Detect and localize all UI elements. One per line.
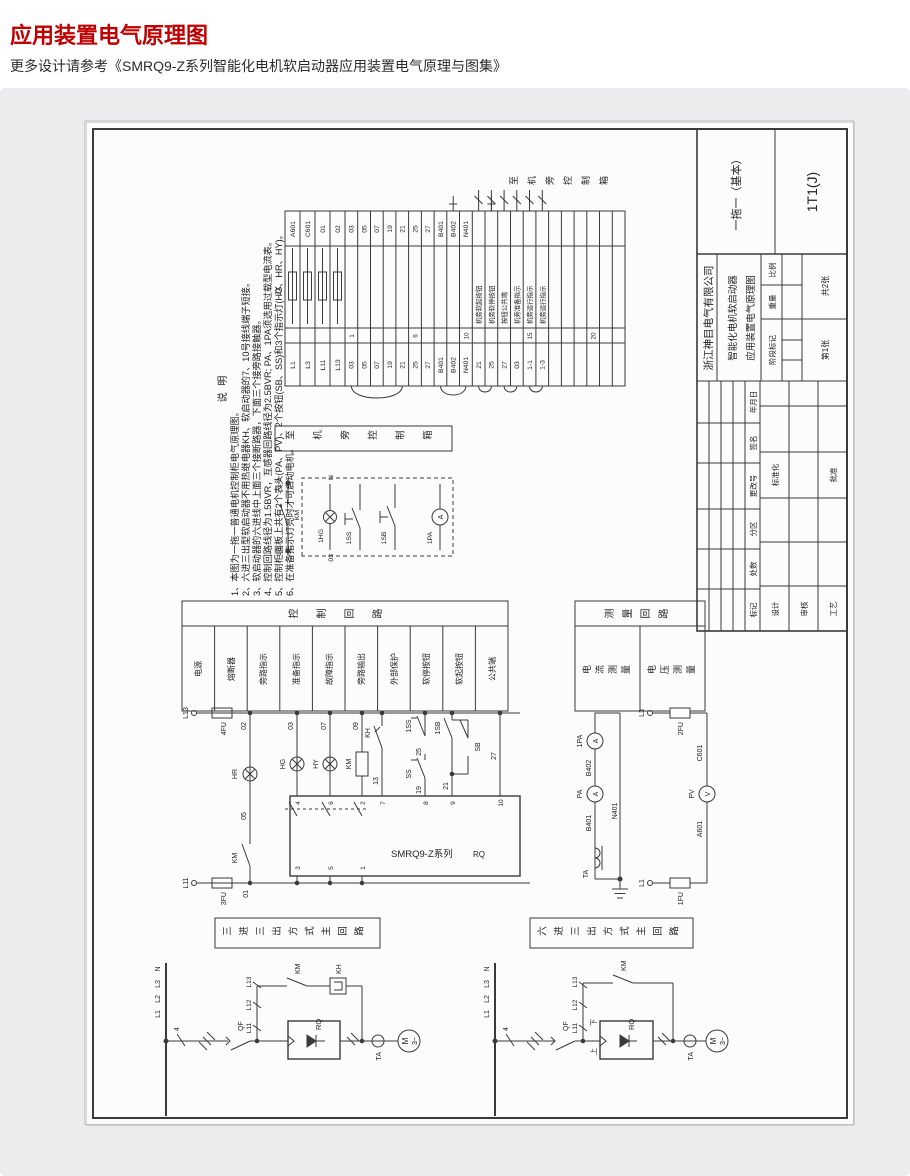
rq-terminal: 10 bbox=[498, 799, 505, 807]
strip-outer: 07 bbox=[374, 361, 381, 369]
contact-label: KH bbox=[365, 728, 372, 738]
contact-label: KM bbox=[232, 853, 239, 864]
main-circuit-a bbox=[164, 918, 420, 1116]
rq-terminal: 9 bbox=[450, 801, 457, 805]
bus-label: L1 bbox=[155, 1010, 162, 1018]
motor-letter: M bbox=[401, 1037, 410, 1044]
wire-label: B401 bbox=[586, 815, 593, 831]
strip-inner: 07 bbox=[374, 225, 381, 233]
measure-row-current: 电流测量 bbox=[582, 663, 634, 676]
tb-scale: 比例 bbox=[767, 263, 777, 278]
rq-terminal: 1 bbox=[360, 866, 367, 870]
wire-label: 07 bbox=[321, 722, 328, 730]
bus-label: L2 bbox=[155, 995, 162, 1003]
strip-outer: 25 bbox=[412, 361, 419, 369]
contact-label: 1SB bbox=[435, 721, 442, 735]
tb-count: 处数 bbox=[748, 561, 758, 576]
strip-inner: N401 bbox=[463, 221, 470, 237]
tb-sheet-no: 第1张 bbox=[820, 340, 830, 360]
caption-main-a: 三进三出方式主回路 bbox=[222, 926, 371, 940]
strip-jumpers bbox=[351, 386, 542, 398]
coil-label: KM bbox=[346, 759, 353, 770]
wire-label: 01 bbox=[243, 890, 250, 898]
contact-label: SB bbox=[475, 742, 482, 752]
strip-num: 1 bbox=[349, 334, 356, 338]
remote-t11: 1-1 bbox=[276, 546, 283, 556]
meter-letter: V bbox=[705, 791, 712, 796]
rotated-drawing: 标记 处数 分区 更改号 签名 年月日 设计 标准化 审核 工艺 批准 浙江神目… bbox=[85, 121, 855, 1126]
tb-code: 1T1(J) bbox=[804, 172, 820, 212]
strip-jx: JX bbox=[274, 286, 283, 296]
strip-func: 机旁运行指示 bbox=[525, 285, 534, 324]
bus-label: L3 bbox=[155, 980, 162, 988]
phase-label: L11 bbox=[246, 1022, 253, 1033]
ctrl-row: 故障指示 bbox=[324, 653, 334, 685]
wire-label: 19 bbox=[416, 786, 423, 794]
strip-outer: 21 bbox=[400, 361, 407, 369]
strip-to-box-label: 至机旁控制箱 bbox=[509, 174, 617, 187]
strip-outer: 03 bbox=[349, 361, 356, 369]
breaker-label: QF bbox=[563, 1021, 570, 1031]
tb-company: 浙江神目电气有限公司 bbox=[702, 266, 715, 371]
strip-num: 15 bbox=[527, 332, 534, 340]
ctrl-row: 软停按钮 bbox=[421, 653, 431, 685]
note-line: 5、控制柜面板上共有2个表头(PA、PV)、2个按钮(SB、SS)和3个指示灯(… bbox=[273, 230, 284, 596]
motor-phase: 3~ bbox=[412, 1037, 419, 1045]
tb-change: 更改号 bbox=[748, 475, 758, 498]
rq-terminal: 4 bbox=[295, 801, 302, 805]
strip-outer: 03 bbox=[514, 361, 521, 369]
strip-func: 按钮公共端 bbox=[500, 291, 509, 324]
strip-stubs bbox=[475, 190, 547, 211]
contact-label: SS bbox=[406, 769, 413, 779]
lamp-label: HR bbox=[232, 769, 239, 779]
strip-inner: 27 bbox=[425, 225, 432, 233]
strip-outer: 1-1 bbox=[527, 360, 534, 370]
title-block bbox=[697, 129, 847, 631]
motor-phase: 3~ bbox=[720, 1037, 727, 1045]
strip-outer: 1-3 bbox=[540, 360, 547, 370]
rq-box-rq-label: RQ bbox=[473, 850, 485, 859]
remote-hg-label: 1HG bbox=[318, 529, 325, 543]
strip-outer: B402 bbox=[451, 357, 458, 373]
note-line: 1、本图为一拖一普通电机控制柜电气原理图。 bbox=[229, 407, 240, 596]
rq-terminal: 3 bbox=[295, 866, 302, 870]
bus-label: N bbox=[484, 966, 491, 971]
strip-inner: 02 bbox=[335, 225, 342, 233]
strip-inner: C601 bbox=[305, 221, 312, 237]
strip-inner: A601 bbox=[290, 221, 297, 237]
wire-label: 13 bbox=[373, 777, 380, 785]
wire-label: N401 bbox=[612, 803, 619, 820]
strip-func: 机旁软停按钮 bbox=[487, 285, 496, 324]
meter-letter: A bbox=[593, 738, 600, 743]
tb-sign: 签名 bbox=[748, 436, 758, 451]
wire-label: B402 bbox=[586, 760, 593, 776]
ctrl-row: 公共端 bbox=[487, 657, 497, 681]
strip-inner: 21 bbox=[400, 225, 407, 233]
ctrl-row: 软起按钮 bbox=[454, 653, 464, 685]
meter-label: PV bbox=[689, 789, 696, 799]
strip-inner: 25 bbox=[412, 225, 419, 233]
wire-label: 4 bbox=[503, 1027, 510, 1031]
page-title: 应用装置电气原理图 bbox=[10, 18, 208, 50]
wire-label: 4 bbox=[174, 1027, 181, 1031]
tb-drawing-title: 应用装置电气原理图 bbox=[745, 275, 757, 361]
notes-heading: 说 明 bbox=[216, 374, 229, 403]
control-circuit bbox=[192, 708, 531, 888]
schematic-svg: 标记 处数 分区 更改号 签名 年月日 设计 标准化 审核 工艺 批准 浙江神目… bbox=[85, 121, 855, 1126]
breaker-label: QF bbox=[238, 1021, 245, 1031]
strip-outer: 27 bbox=[501, 361, 508, 369]
wire-label: 上 bbox=[589, 1048, 598, 1055]
strip-inner: 19 bbox=[387, 225, 394, 233]
frame bbox=[86, 122, 854, 1125]
fuse-label: 3FU bbox=[221, 892, 228, 905]
tb-product: 智能化电机软启动器 bbox=[727, 275, 739, 361]
note-line: 3、软启动器的六进线中上面三个接断路器，下面三个接旁路接触器。 bbox=[251, 315, 262, 596]
strip-inner: 05 bbox=[361, 225, 368, 233]
control-table-header: 控制回路 bbox=[288, 608, 400, 623]
wire-label: 02 bbox=[241, 722, 248, 730]
diagram-panel: 标记 处数 分区 更改号 签名 年月日 设计 标准化 审核 工艺 批准 浙江神目… bbox=[0, 88, 910, 1176]
motor-letter: M bbox=[709, 1037, 718, 1044]
strip-outer: B401 bbox=[438, 357, 445, 373]
remote-ammeter-letter: A bbox=[438, 514, 445, 519]
tb-design: 设计 bbox=[770, 601, 780, 616]
page-subtitle: 更多设计请参考《SMRQ9-Z系列智能化电机软启动器应用装置电气原理与图集》 bbox=[10, 56, 507, 76]
meter-label: 1PA bbox=[577, 734, 584, 747]
rq-terminal: 5 bbox=[328, 866, 335, 870]
ctrl-row: 准备指示 bbox=[291, 653, 301, 685]
phase-label: L12 bbox=[572, 999, 579, 1010]
strip-outer: 25 bbox=[489, 361, 496, 369]
fuse-label: 4FU bbox=[221, 722, 228, 735]
tb-zone: 分区 bbox=[749, 521, 758, 536]
wire-label: 25 bbox=[416, 748, 423, 756]
phase-label: L12 bbox=[246, 999, 253, 1010]
strip-inner: 03 bbox=[349, 225, 356, 233]
strip-ticks bbox=[449, 196, 495, 211]
meter-letter: A bbox=[593, 791, 600, 796]
rq-label: RQ bbox=[627, 1019, 636, 1030]
meter-label: PA bbox=[577, 789, 584, 798]
contact-label: KM bbox=[621, 960, 628, 971]
drawing-sheet: 标记 处数 分区 更改号 签名 年月日 设计 标准化 审核 工艺 批准 浙江神目… bbox=[84, 120, 854, 1125]
measure-circuit bbox=[587, 708, 715, 898]
thermal-label: KH bbox=[336, 964, 343, 974]
tb-sheet-total: 共2张 bbox=[821, 276, 830, 296]
tb-variant: 一拖一（基本） bbox=[729, 154, 743, 231]
rq-terminal: 8 bbox=[423, 801, 430, 805]
strip-func: 机旁软起按钮 bbox=[474, 285, 483, 324]
note-line: 4、控制回路线径为1.5BVR，互感器回路线径为2.5BVR; PA、1PA须选… bbox=[262, 237, 273, 596]
bus-label: L3 bbox=[484, 980, 491, 988]
remote-w03: 03 bbox=[328, 554, 335, 562]
wire-label: L1 bbox=[639, 879, 646, 887]
note-line: 2、六进三出型软启动器不用热继电器KH、软启动器的7、10号接线端子短接。 bbox=[240, 278, 251, 596]
phase-label: L13 bbox=[572, 976, 579, 987]
notes: 说 明 1、本图为一拖一普通电机控制柜电气原理图。 2、六进三出型软启动器不用热… bbox=[216, 230, 295, 596]
strip-inner: B401 bbox=[438, 221, 445, 237]
fuse-label: 1FU bbox=[678, 892, 685, 905]
wire-label: L13 bbox=[183, 707, 190, 719]
ct-label: TA bbox=[583, 869, 590, 878]
ct-label: TA bbox=[376, 1052, 383, 1061]
strip-inner: 01 bbox=[320, 225, 327, 233]
lamp-label: HG bbox=[280, 759, 287, 770]
contact-label: 1SS bbox=[406, 719, 413, 733]
rq-label: RQ bbox=[314, 1019, 323, 1030]
strip-outer: L11 bbox=[320, 359, 327, 370]
main-circuit-b-text: 4 L1 L2 L3 N QF L11 L12 L13 KM 上 下 RQ TA… bbox=[484, 960, 727, 1060]
remote-ss-label: 1SS bbox=[346, 531, 353, 544]
strip-outer: 05 bbox=[361, 361, 368, 369]
main-circuit-a-text: 4 L1 L2 L3 N QF L11 L12 L13 KM KH RQ TA … bbox=[155, 963, 419, 1060]
wire-label: 下 bbox=[590, 1019, 598, 1026]
remote-n: N bbox=[328, 475, 335, 480]
strip-inner: B402 bbox=[451, 221, 458, 237]
strip-outer: L3 bbox=[305, 361, 312, 369]
strip-outer: L1 bbox=[290, 361, 297, 369]
phase-label: L13 bbox=[246, 976, 253, 987]
bus-label: N bbox=[155, 966, 162, 971]
contact-label: KM bbox=[295, 963, 302, 974]
tb-standard: 标准化 bbox=[770, 463, 780, 486]
fuse-label: 2FU bbox=[678, 722, 685, 735]
wire-label: L11 bbox=[183, 877, 190, 888]
remote-box-label: 至机旁控制箱 bbox=[285, 430, 450, 444]
measure-row-voltage: 电压测量 bbox=[647, 663, 699, 676]
strip-outer: 27 bbox=[425, 361, 432, 369]
rq-box-series-label: SMRQ9-Z系列 bbox=[391, 846, 453, 860]
strip-outer: 21 bbox=[476, 361, 483, 369]
wire-label: 03 bbox=[288, 722, 295, 730]
tb-weight: 重量 bbox=[768, 294, 777, 309]
remote-pa-label: 1PA bbox=[427, 531, 434, 544]
bus-label: L2 bbox=[484, 995, 491, 1003]
rq-terminal: 6 bbox=[328, 801, 335, 805]
tb-audit: 审核 bbox=[799, 601, 809, 616]
tb-stage: 阶段标记 bbox=[767, 335, 777, 365]
strip-func: 机旁准备指示 bbox=[512, 285, 521, 324]
strip-num: 6 bbox=[413, 334, 420, 338]
wire-label: L3 bbox=[639, 709, 646, 717]
lamp-label: HY bbox=[313, 759, 320, 769]
strip-outer: N401 bbox=[463, 357, 470, 373]
ctrl-row: 旁路输出 bbox=[356, 653, 366, 685]
remote-t13: 1-3 bbox=[276, 478, 283, 488]
wire-label: 27 bbox=[491, 752, 498, 760]
tb-date: 年月日 bbox=[748, 391, 758, 414]
ctrl-row: 电源 bbox=[193, 661, 203, 677]
rq-terminal: 2 bbox=[360, 801, 367, 805]
main-circuit-b bbox=[493, 918, 728, 1116]
measure-circuit-text: TA B401 PA A B402 1PA A N401 L3 2FU C601… bbox=[577, 709, 712, 905]
remote-km-label: KM bbox=[294, 510, 301, 521]
ct-label: TA bbox=[688, 1052, 695, 1061]
bus-label: L1 bbox=[484, 1010, 491, 1018]
ctrl-row: 熔断器 bbox=[226, 657, 236, 681]
remote-sb-label: 1SB bbox=[381, 531, 388, 544]
strip-outer: 19 bbox=[387, 361, 394, 369]
caption-main-b: 六进三出方式主回路 bbox=[537, 926, 686, 940]
strip-num: 10 bbox=[463, 332, 470, 340]
tb-mark: 标记 bbox=[748, 602, 758, 617]
rq-terminal: 7 bbox=[380, 801, 387, 805]
wire-label: C601 bbox=[697, 745, 704, 762]
wire-label: 05 bbox=[241, 812, 248, 820]
wire-label: 21 bbox=[443, 782, 450, 790]
wire-label: A601 bbox=[697, 821, 704, 837]
phase-label: L11 bbox=[572, 1022, 579, 1033]
tb-approve: 批准 bbox=[828, 467, 838, 482]
strip-num: 20 bbox=[590, 332, 597, 340]
strip-outer: L13 bbox=[335, 359, 342, 371]
wire-label: 09 bbox=[353, 722, 360, 730]
tb-craft: 工艺 bbox=[829, 602, 838, 617]
measure-table-header: 测量回路 bbox=[604, 608, 676, 623]
strip-func: 机旁运行指示 bbox=[538, 285, 547, 324]
ctrl-row: 外部保护 bbox=[389, 653, 399, 685]
ctrl-row: 旁路指示 bbox=[258, 653, 268, 685]
